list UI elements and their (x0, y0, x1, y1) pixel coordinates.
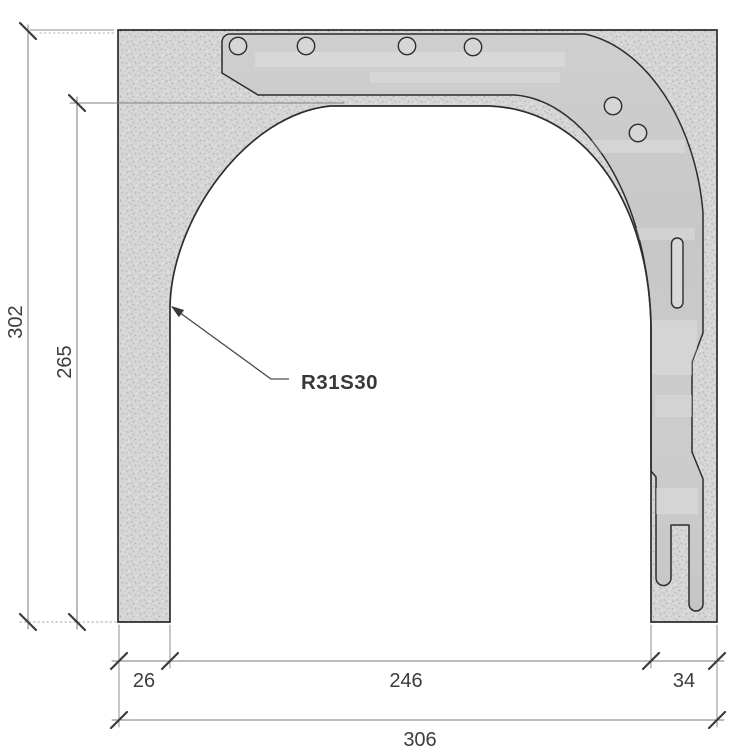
steel-liner-plate (222, 34, 703, 611)
dim-text-inner-height: 265 (54, 345, 76, 378)
technical-drawing-cross-section: 302 265 26 246 34 306 R31S30 (0, 0, 744, 751)
plate-outline (222, 34, 703, 611)
dim-text-total-width: 306 (403, 729, 436, 751)
dim-text-left-wall: 26 (133, 670, 155, 692)
bolt-hole (297, 37, 314, 54)
leader-arrowhead-icon (171, 306, 184, 317)
dim-text-total-height: 302 (5, 305, 27, 338)
bolt-hole (604, 97, 621, 114)
leader-line (172, 307, 289, 379)
leader-label: R31S30 (301, 371, 378, 394)
bolt-hole (464, 38, 481, 55)
dim-text-right-wall: 34 (673, 670, 695, 692)
bolt-hole (629, 124, 646, 141)
bolt-hole (229, 37, 246, 54)
bolt-hole (398, 37, 415, 54)
leader-callout: R31S30 (171, 306, 378, 394)
drawing-svg: 302 265 26 246 34 306 R31S30 (0, 0, 744, 751)
dim-text-opening-width: 246 (389, 670, 422, 692)
slotted-hole (672, 238, 684, 308)
